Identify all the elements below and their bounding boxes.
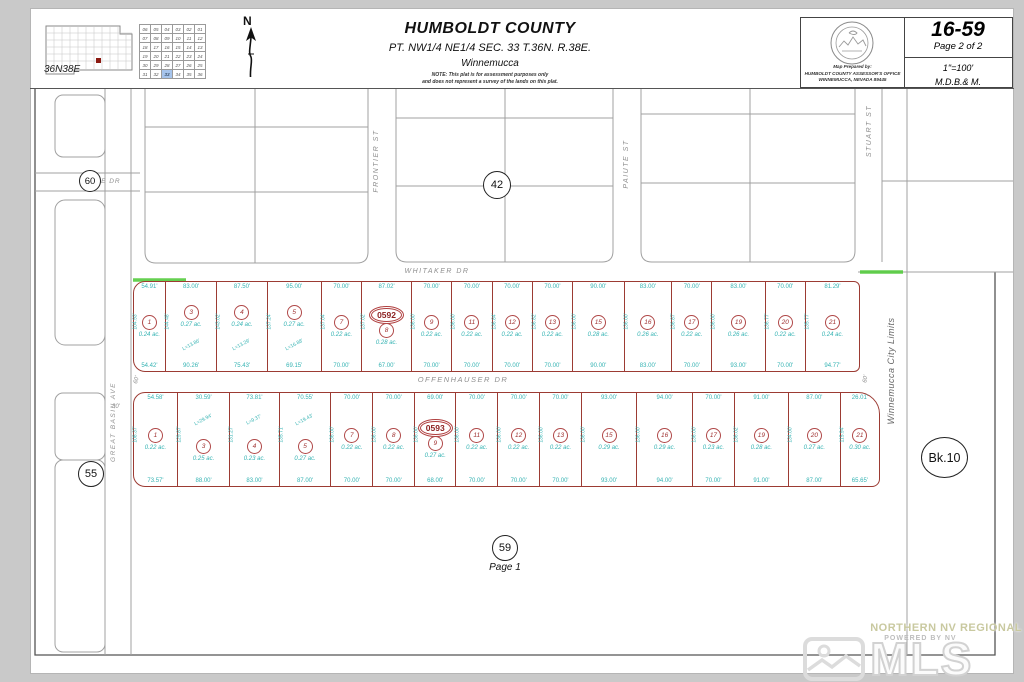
- street-label-paiute: PAIUTE ST: [623, 132, 630, 196]
- lot-area-label: 0.26 ac.: [637, 332, 658, 338]
- lot-number-circle: 20: [807, 428, 822, 443]
- lot-number-circle: 5: [287, 305, 302, 320]
- map-ref-59: 59: [492, 535, 518, 561]
- lot-center-group: 10.24 ac.: [139, 315, 160, 338]
- lot-side-dimension: 134.00': [788, 417, 793, 453]
- lot-number-circle: 21: [825, 315, 840, 330]
- section-cell-14: 14: [184, 43, 195, 52]
- section-cell-22: 22: [173, 52, 184, 61]
- lot-area-label: 0.22 ac.: [461, 332, 482, 338]
- section-cell-30: 30: [140, 61, 151, 70]
- lot-area-label: 0.25 ac.: [193, 456, 214, 462]
- lot-center-group: 170.23 ac.: [703, 428, 724, 451]
- lot-number-circle: 19: [731, 315, 746, 330]
- assessment-note: NOTE: This plat is for assessment purpos…: [300, 72, 680, 85]
- lot-side-dimension: 136.00': [581, 417, 586, 453]
- lot-bottom-dimension: 93.00': [601, 478, 617, 484]
- lot-number-circle: 4: [234, 305, 249, 320]
- lot-number-circle: 8: [379, 323, 394, 338]
- section-cell-20: 20: [151, 52, 162, 61]
- lot-number-circle: 4: [247, 439, 262, 454]
- lot-parcel-0593-8: 70.00'80.22 ac.70.00'136.00': [372, 393, 414, 486]
- lot-bottom-dimension: 93.00': [730, 363, 746, 369]
- lot-parcel-0592-15: 90.00'150.28 ac.90.00'136.00': [572, 282, 624, 371]
- lot-number-circle: 16: [657, 428, 672, 443]
- map-number-section: 16-59 Page 2 of 2: [904, 19, 1012, 58]
- page-indicator: Page 2 of 2: [904, 41, 1012, 52]
- lot-parcel-0592-9: 70.00'90.22 ac.70.00'136.00': [411, 282, 451, 371]
- prepared-by-text: Map Prepared by: HUMBOLDT COUNTY ASSESSO…: [801, 64, 904, 84]
- lot-number-circle: 8: [386, 428, 401, 443]
- lot-parcel-0593-20: 87.00'200.27 ac.87.00'134.00': [788, 393, 840, 486]
- assessor-seal-box: Map Prepared by: HUMBOLDT COUNTY ASSESSO…: [800, 17, 905, 88]
- lot-area-label: 0.23 ac.: [703, 445, 724, 451]
- lot-side-dimension: 137.02': [362, 304, 367, 340]
- lot-side-dimension: 136.00': [540, 417, 545, 453]
- lot-parcel-0593-4: 73.81'L=9.37'40.23 ac.83.00'131.27': [229, 393, 278, 486]
- section-cell-17: 17: [151, 43, 162, 52]
- lot-area-label: 0.22 ac.: [145, 445, 166, 451]
- lot-bottom-dimension: 54.42': [141, 363, 157, 369]
- lot-side-dimension: 136.00': [498, 417, 503, 453]
- section-cell-06: 06: [140, 25, 151, 34]
- lot-area-label: 0.24 ac.: [822, 332, 843, 338]
- section-cell-09: 09: [162, 34, 173, 43]
- lot-top-dimension: 70.00': [777, 284, 793, 290]
- lot-bottom-dimension: 67.00': [378, 363, 394, 369]
- lot-side-dimension: 136.00': [693, 417, 698, 453]
- lot-bottom-dimension: 70.00': [469, 478, 485, 484]
- township-label: 36N38E: [44, 64, 80, 75]
- block-number-oval-0592: 0592: [371, 308, 402, 322]
- street-label-whitaker: WHITAKER DR: [377, 268, 497, 275]
- lot-parcel-0592-12: 70.00'120.22 ac.70.00'136.84': [492, 282, 532, 371]
- mls-logo-text: MLS: [870, 636, 973, 682]
- lot-area-label: 0.30 ac.: [849, 445, 870, 451]
- lot-bottom-dimension: 70.00': [344, 478, 360, 484]
- lot-area-label: 0.22 ac.: [775, 332, 796, 338]
- lot-top-curve-dimension: L=9.37': [246, 414, 263, 426]
- lot-parcel-0592-17: 70.00'170.22 ac.70.00'136.87': [671, 282, 711, 371]
- plat-map-page: 36N38E 060504030201070809101112181716151…: [0, 0, 1024, 682]
- lot-top-dimension: 87.00': [806, 395, 822, 401]
- lot-parcel-0592-11: 70.00'110.22 ac.70.00'136.00': [451, 282, 491, 371]
- section-cell-18: 18: [140, 43, 151, 52]
- lot-side-dimension: 136.00': [456, 417, 461, 453]
- lot-center-group: 80.22 ac.: [383, 428, 404, 451]
- section-cell-13: 13: [195, 43, 206, 52]
- lot-number-circle: 17: [706, 428, 721, 443]
- county-title: HUMBOLDT COUNTY: [300, 20, 680, 38]
- lot-area-label: 0.27 ac.: [284, 322, 305, 328]
- lot-area-label: 0.22 ac.: [550, 445, 571, 451]
- lot-parcel-0592-20: 70.00'200.22 ac.70.00'136.77': [765, 282, 805, 371]
- lot-area-label: 0.24 ac.: [231, 322, 252, 328]
- lot-side-dimension: 136.77': [765, 304, 770, 340]
- lot-parcel-0593-15: 93.00'150.29 ac.93.00'136.00': [581, 393, 636, 486]
- lot-area-label: 0.28 ac.: [588, 332, 609, 338]
- lot-bottom-dimension: 88.00': [196, 478, 212, 484]
- lot-bottom-dimension: 70.00': [504, 363, 520, 369]
- lot-center-group: 059280.28 ac.: [371, 308, 402, 346]
- lot-parcel-0593-21: 26.01'210.30 ac.65.65'115.94': [840, 393, 879, 486]
- lot-side-dimension: 136.00': [573, 304, 578, 340]
- lot-bottom-dimension: 94.77': [824, 363, 840, 369]
- lot-area-label: 0.27 ac.: [804, 445, 825, 451]
- lot-parcel-0593-19: 91.00'190.28 ac.91.00'136.02': [734, 393, 788, 486]
- lot-side-dimension: 137.24': [267, 304, 272, 340]
- lot-bottom-dimension: 73.57': [147, 478, 163, 484]
- section-cell-07: 07: [140, 34, 151, 43]
- lot-number-circle: 13: [553, 428, 568, 443]
- lot-area-label: 0.27 ac.: [425, 453, 446, 459]
- section-cell-23: 23: [184, 52, 195, 61]
- lot-number-circle: 17: [684, 315, 699, 330]
- street-label-great-basin: GREAT BASIN AVE: [110, 372, 117, 472]
- lot-parcel-0592-5: 95.00'50.27 ac.L=16.88'69.15'137.24': [267, 282, 321, 371]
- lot-side-dimension: 135.77': [805, 304, 810, 340]
- section-cell-24: 24: [195, 52, 206, 61]
- lot-top-dimension: 70.55': [297, 395, 313, 401]
- lot-number-circle: 11: [464, 315, 479, 330]
- lot-top-curve-dimension: L=19.43': [295, 413, 314, 426]
- lot-center-group: 190.28 ac.: [751, 428, 772, 451]
- lot-top-dimension: 94.00': [657, 395, 673, 401]
- section-cell-27: 27: [173, 61, 184, 70]
- lot-number-circle: 1: [142, 315, 157, 330]
- lot-bottom-curve-dimension: L=13.29': [232, 339, 251, 352]
- lot-side-dimension: 129.87': [177, 417, 182, 453]
- lot-area-label: 0.28 ac.: [376, 340, 397, 346]
- offset-dim-30: 30': [112, 404, 120, 410]
- lot-number-circle: 1: [148, 428, 163, 443]
- lot-center-group: 190.26 ac.: [728, 315, 749, 338]
- lot-number-circle: 5: [298, 439, 313, 454]
- lot-center-group: 150.29 ac.: [598, 428, 619, 451]
- lot-center-group: 120.22 ac.: [501, 315, 522, 338]
- lot-center-group: 150.28 ac.: [588, 315, 609, 338]
- lot-bottom-dimension: 70.00': [705, 478, 721, 484]
- lot-bottom-dimension: 70.00': [424, 363, 440, 369]
- lot-center-group: 50.27 ac.: [284, 305, 305, 328]
- section-cell-08: 08: [151, 34, 162, 43]
- title-block: HUMBOLDT COUNTY PT. NW1/4 NE1/4 SEC. 33 …: [300, 20, 680, 85]
- section-cell-01: 01: [195, 25, 206, 34]
- lot-top-dimension: 91.00': [753, 395, 769, 401]
- lot-number-circle: 15: [602, 428, 617, 443]
- lot-area-label: 0.22 ac.: [542, 332, 563, 338]
- lot-number-circle: 12: [505, 315, 520, 330]
- lot-number-circle: 16: [640, 315, 655, 330]
- lot-number-circle: 3: [184, 305, 199, 320]
- lot-center-group: 50.27 ac.: [294, 439, 315, 462]
- lot-bottom-dimension: 90.26': [183, 363, 199, 369]
- lot-center-group: 30.25 ac.: [193, 439, 214, 462]
- lot-bottom-dimension: 70.00': [684, 363, 700, 369]
- lot-parcel-0593-7: 70.00'70.22 ac.70.00'136.00': [330, 393, 372, 486]
- lot-bottom-dimension: 68.00': [427, 478, 443, 484]
- lot-top-dimension: 54.58': [147, 395, 163, 401]
- city-name: Winnemucca: [300, 58, 680, 69]
- lot-center-group: 059390.27 ac.: [420, 421, 451, 459]
- photo-icon: [802, 636, 866, 682]
- lot-bottom-dimension: 87.00': [297, 478, 313, 484]
- map-ref-60: 60: [79, 170, 101, 192]
- header-divider-line: [30, 88, 1014, 89]
- lot-top-dimension: 87.50': [234, 284, 250, 290]
- section-cell-03: 03: [173, 25, 184, 34]
- lot-top-dimension: 83.00': [640, 284, 656, 290]
- lot-top-dimension: 70.00': [333, 284, 349, 290]
- lot-parcel-0592-16: 83.00'160.26 ac.83.00'136.00': [624, 282, 672, 371]
- lot-parcel-0593-12: 70.00'120.22 ac.70.00'136.00': [497, 393, 539, 486]
- lot-side-dimension: 136.84': [492, 304, 497, 340]
- lot-side-dimension: 144.48': [165, 304, 170, 340]
- lot-center-group: 210.24 ac.: [822, 315, 843, 338]
- lot-number-circle: 7: [344, 428, 359, 443]
- scale-section: 1"=100' M.D.B.& M.: [904, 58, 1012, 90]
- lot-area-label: 0.22 ac.: [501, 332, 522, 338]
- section-cell-19: 19: [140, 52, 151, 61]
- lot-side-dimension: 115.94': [840, 417, 845, 453]
- lot-area-label: 0.22 ac.: [331, 332, 352, 338]
- lot-center-group: 30.27 ac.: [180, 305, 201, 328]
- lot-side-dimension: 136.00': [415, 417, 420, 453]
- lot-side-dimension: 131.27': [230, 417, 235, 453]
- lot-top-dimension: 70.00': [684, 284, 700, 290]
- lot-center-group: 160.26 ac.: [637, 315, 658, 338]
- lot-top-dimension: 26.01': [852, 395, 868, 401]
- lot-top-dimension: 70.00': [424, 284, 440, 290]
- lot-side-dimension: 104.93': [134, 304, 139, 340]
- lot-side-dimension: 135.71': [279, 417, 284, 453]
- mls-watermark-text: NORTHERN NV REGIONAL POWERED BY NV MLS: [870, 623, 1022, 682]
- lot-top-dimension: 95.00': [286, 284, 302, 290]
- lot-area-label: 0.29 ac.: [598, 445, 619, 451]
- lot-number-circle: 20: [778, 315, 793, 330]
- lot-center-group: 130.22 ac.: [542, 315, 563, 338]
- lot-bottom-dimension: 70.00': [777, 363, 793, 369]
- lot-parcel-0593-11: 70.00'110.22 ac.70.00'136.00': [455, 393, 497, 486]
- section-cell-28: 28: [162, 61, 173, 70]
- lot-side-dimension: 136.87': [672, 304, 677, 340]
- map-ref-59-page: Page 1: [470, 562, 540, 573]
- lot-side-dimension: 136.00': [624, 304, 629, 340]
- lot-center-group: 120.22 ac.: [508, 428, 529, 451]
- lot-bottom-dimension: 91.00': [753, 478, 769, 484]
- lot-side-dimension: 136.00': [637, 417, 642, 453]
- lot-side-dimension: 137.04': [321, 304, 326, 340]
- section-grid: 0605040302010708091011121817161514131920…: [139, 24, 206, 79]
- lot-side-dimension: 136.82': [532, 304, 537, 340]
- lot-center-group: 110.22 ac.: [461, 315, 482, 338]
- lot-parcel-0592-19: 83.00'190.26 ac.93.00'136.00': [711, 282, 764, 371]
- map-ref-55: 55: [78, 461, 104, 487]
- section-cell-26: 26: [184, 61, 195, 70]
- lot-center-group: 160.29 ac.: [654, 428, 675, 451]
- lot-parcel-0592-8: 87.02'059280.28 ac.67.00'137.02': [361, 282, 411, 371]
- legal-description: PT. NW1/4 NE1/4 SEC. 33 T.36N. R.38E.: [300, 42, 680, 54]
- section-cell-34: 34: [173, 70, 184, 79]
- lot-top-dimension: 87.02': [378, 284, 394, 290]
- lot-center-group: 130.22 ac.: [550, 428, 571, 451]
- location-marker: [96, 58, 101, 63]
- street-label-stuart: STUART ST: [866, 99, 873, 163]
- lot-area-label: 0.27 ac.: [294, 456, 315, 462]
- lot-bottom-dimension: 70.00': [511, 478, 527, 484]
- block-number-oval-0593: 0593: [420, 421, 451, 435]
- section-cell-11: 11: [184, 34, 195, 43]
- lot-number-circle: 12: [511, 428, 526, 443]
- block-0593-strip: 54.58'10.22 ac.73.57'108.37'30.59'L=29.9…: [133, 392, 880, 487]
- lot-top-dimension: 70.00': [552, 395, 568, 401]
- lot-top-curve-dimension: L=29.94': [194, 413, 213, 426]
- lot-center-group: 10.22 ac.: [145, 428, 166, 451]
- lot-area-label: 0.22 ac.: [508, 445, 529, 451]
- lot-side-dimension: 108.37': [134, 417, 139, 453]
- section-cell-12: 12: [195, 34, 206, 43]
- lot-top-dimension: 70.00': [344, 395, 360, 401]
- lot-side-dimension: 136.02': [734, 417, 739, 453]
- lot-bottom-dimension: 75.43': [234, 363, 250, 369]
- assessor-seal-icon: [829, 20, 875, 66]
- lot-top-dimension: 70.00': [464, 284, 480, 290]
- lot-number-circle: 9: [428, 436, 443, 451]
- lot-center-group: 200.27 ac.: [804, 428, 825, 451]
- section-cell-32: 32: [151, 70, 162, 79]
- lot-parcel-0593-16: 94.00'160.29 ac.94.00'136.00': [636, 393, 692, 486]
- lot-area-label: 0.28 ac.: [751, 445, 772, 451]
- lot-top-dimension: 70.00': [386, 395, 402, 401]
- lot-side-dimension: 136.00': [373, 417, 378, 453]
- lot-number-circle: 11: [469, 428, 484, 443]
- lot-parcel-0592-3: 83.00'30.27 ac.L=13.86'90.26'144.48': [165, 282, 217, 371]
- lot-center-group: 110.22 ac.: [466, 428, 487, 451]
- lot-area-label: 0.26 ac.: [728, 332, 749, 338]
- lot-side-dimension: 136.00': [331, 417, 336, 453]
- lot-top-dimension: 30.59': [196, 395, 212, 401]
- lot-side-dimension: 136.00': [411, 304, 416, 340]
- section-cell-29: 29: [151, 61, 162, 70]
- lot-top-dimension: 54.91': [141, 284, 157, 290]
- street-label-frontier: FRONTIER ST: [373, 125, 380, 197]
- lot-bottom-dimension: 90.00': [590, 363, 606, 369]
- lot-bottom-dimension: 70.00': [544, 363, 560, 369]
- green-highlight-marks: [133, 272, 903, 280]
- section-cell-10: 10: [173, 34, 184, 43]
- lot-number-circle: 15: [591, 315, 606, 330]
- lot-center-group: 210.30 ac.: [849, 428, 870, 451]
- lot-number-circle: 7: [334, 315, 349, 330]
- lot-area-label: 0.29 ac.: [654, 445, 675, 451]
- meridian-label: M.D.B.& M.: [904, 75, 1012, 89]
- lot-number-circle: 9: [424, 315, 439, 330]
- section-cell-21: 21: [162, 52, 173, 61]
- lot-top-dimension: 70.00': [511, 395, 527, 401]
- section-cell-36: 36: [195, 70, 206, 79]
- lot-parcel-0592-7: 70.00'70.22 ac.70.00'137.04': [321, 282, 361, 371]
- lot-center-group: 200.22 ac.: [775, 315, 796, 338]
- lot-top-dimension: 70.00': [544, 284, 560, 290]
- lot-area-label: 0.22 ac.: [466, 445, 487, 451]
- lot-area-label: 0.22 ac.: [383, 445, 404, 451]
- lot-parcel-0592-1: 54.91'10.24 ac.54.42'104.93': [134, 282, 165, 371]
- lot-top-dimension: 93.00': [601, 395, 617, 401]
- lot-area-label: 0.22 ac.: [421, 332, 442, 338]
- map-number: 16-59: [904, 19, 1012, 41]
- lot-top-dimension: 70.00': [705, 395, 721, 401]
- map-number-box: 16-59 Page 2 of 2 1"=100' M.D.B.& M.: [904, 17, 1013, 88]
- lot-bottom-dimension: 70.00': [333, 363, 349, 369]
- lot-center-group: 90.22 ac.: [421, 315, 442, 338]
- section-cell-35: 35: [184, 70, 195, 79]
- north-label: N: [243, 14, 252, 28]
- lot-center-group: 70.22 ac.: [331, 315, 352, 338]
- section-cell-02: 02: [184, 25, 195, 34]
- lot-side-dimension: 143.02': [217, 304, 222, 340]
- lot-parcel-0593-9: 69.00'059390.27 ac.68.00'136.00': [414, 393, 455, 486]
- lot-bottom-dimension: 70.00': [464, 363, 480, 369]
- lot-center-group: 70.22 ac.: [341, 428, 362, 451]
- lot-side-dimension: 136.00': [712, 304, 717, 340]
- lot-parcel-0593-1: 54.58'10.22 ac.73.57'108.37': [134, 393, 177, 486]
- lot-area-label: 0.22 ac.: [341, 445, 362, 451]
- lot-bottom-dimension: 70.00': [386, 478, 402, 484]
- map-ref-42: 42: [483, 171, 511, 199]
- lot-top-dimension: 70.00': [469, 395, 485, 401]
- lot-area-label: 0.27 ac.: [180, 322, 201, 328]
- lot-parcel-0593-17: 70.00'170.23 ac.70.00'136.00': [692, 393, 734, 486]
- lot-top-dimension: 83.00': [730, 284, 746, 290]
- lot-parcel-0593-3: 30.59'L=29.94'30.25 ac.88.00'129.87': [177, 393, 229, 486]
- lot-parcel-0593-13: 70.00'130.22 ac.70.00'136.00': [539, 393, 581, 486]
- block-0592-strip: 54.91'10.24 ac.54.42'104.93'83.00'30.27 …: [133, 281, 860, 372]
- lot-number-circle: 19: [754, 428, 769, 443]
- north-arrow-icon: [244, 27, 258, 79]
- lot-parcel-0592-13: 70.00'130.22 ac.70.00'136.82': [532, 282, 572, 371]
- lot-top-dimension: 70.00': [504, 284, 520, 290]
- section-cell-15: 15: [173, 43, 184, 52]
- lot-number-circle: 21: [852, 428, 867, 443]
- lot-side-dimension: 136.00': [452, 304, 457, 340]
- lot-bottom-dimension: 65.65': [852, 478, 868, 484]
- lot-number-circle: 13: [545, 315, 560, 330]
- lot-bottom-curve-dimension: L=16.88': [285, 339, 304, 352]
- lot-parcel-0593-5: 70.55'L=19.43'50.27 ac.87.00'135.71': [279, 393, 331, 486]
- lot-top-dimension: 83.00': [183, 284, 199, 290]
- lot-parcel-0592-21: 81.29'210.24 ac.94.77'135.77': [805, 282, 859, 371]
- lot-top-dimension: 69.00': [427, 395, 443, 401]
- lot-top-dimension: 90.00': [590, 284, 606, 290]
- lot-center-group: 170.22 ac.: [681, 315, 702, 338]
- lot-bottom-dimension: 69.15': [286, 363, 302, 369]
- lot-number-circle: 3: [196, 439, 211, 454]
- lot-bottom-dimension: 87.00': [806, 478, 822, 484]
- lot-area-label: 0.23 ac.: [244, 456, 265, 462]
- lot-area-label: 0.24 ac.: [139, 332, 160, 338]
- lot-parcel-0592-4: 87.50'40.24 ac.L=13.29'75.43'143.02': [216, 282, 266, 371]
- section-cell-05: 05: [151, 25, 162, 34]
- book-ref: Bk.10: [921, 437, 968, 478]
- lot-bottom-dimension: 94.00': [657, 478, 673, 484]
- street-label-offenhauser: OFFENHAUSER DR: [393, 375, 533, 384]
- section-cell-25: 25: [195, 61, 206, 70]
- section-cell-33: 33: [162, 70, 173, 79]
- lot-center-group: 40.23 ac.: [244, 439, 265, 462]
- lot-bottom-curve-dimension: L=13.86': [181, 339, 200, 352]
- section-cell-31: 31: [140, 70, 151, 79]
- lot-top-dimension: 73.81': [246, 395, 262, 401]
